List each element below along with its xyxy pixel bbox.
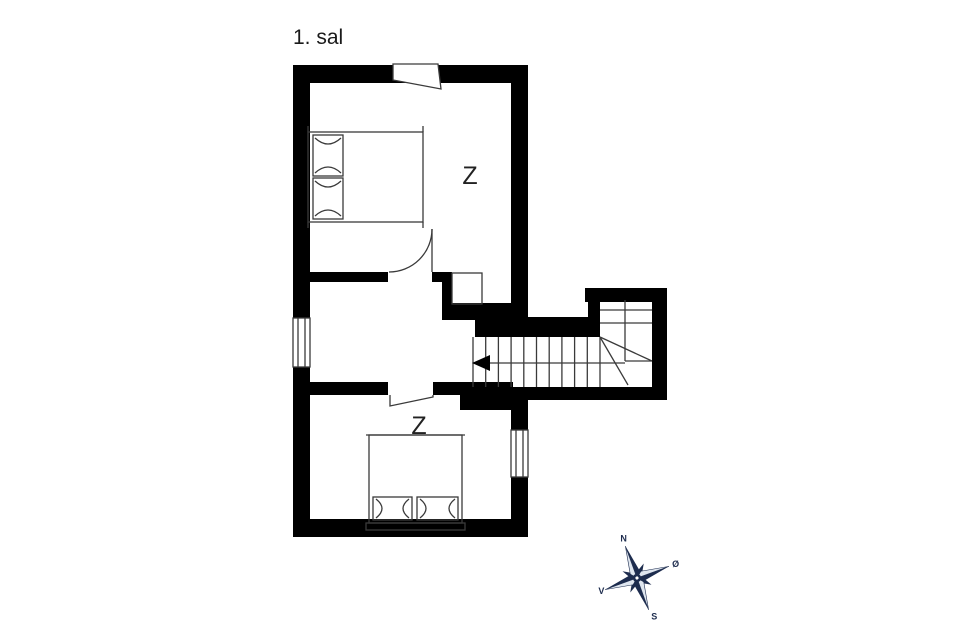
window-left <box>293 318 310 367</box>
stair-direction <box>472 355 625 371</box>
pillow-curve <box>315 167 341 173</box>
pillow-curve <box>315 181 341 187</box>
wall-segment-right-upper <box>511 65 528 323</box>
wall-segment-stairwell-bottom <box>513 387 667 400</box>
floor-plan-drawing: 1. sal <box>0 0 960 640</box>
bedroom1-label: Z <box>462 162 477 190</box>
pillow <box>313 178 343 219</box>
pillow-curve <box>315 138 341 144</box>
wall-segment-bedroom1-partition <box>310 272 388 282</box>
pillow-curve <box>449 499 455 518</box>
pillow <box>313 135 343 176</box>
stair-winder-treads <box>600 300 652 385</box>
pillow-curve <box>420 499 426 518</box>
bedroom2-label: Z <box>411 412 426 440</box>
wall-segment-stairwell-right <box>652 288 667 400</box>
wall-segment-closet-left <box>442 272 452 307</box>
wall-segment-stair-top <box>475 317 600 337</box>
closet-box <box>452 273 482 304</box>
wall-segment-stair-corner <box>460 382 513 410</box>
floor-title: 1. sal <box>293 26 343 49</box>
winder-diagonal <box>600 337 652 361</box>
bed-frame <box>308 132 423 222</box>
winder-diagonal <box>600 337 628 385</box>
window-right <box>511 430 528 477</box>
compass-rose-icon: N Ø S V <box>581 517 697 637</box>
double-bed-upper-icon <box>308 126 423 228</box>
floor-plan-page: 1. sal <box>0 0 960 640</box>
pillow-curve <box>315 210 341 216</box>
bed-frame <box>369 435 462 523</box>
pillow <box>417 497 458 520</box>
door-swing-arc <box>389 229 432 272</box>
compass-west-label: V <box>598 586 604 596</box>
compass-north-label: N <box>620 533 627 543</box>
compass-east-label: Ø <box>672 559 679 569</box>
window-frame <box>511 430 528 477</box>
compass-south-label: S <box>651 612 657 622</box>
pillow-curve <box>376 499 382 518</box>
pillow-curve <box>403 499 409 518</box>
wall-segment-bedroom2-partition-left <box>310 382 388 395</box>
window-frame <box>293 318 310 367</box>
door-bedroom1 <box>389 229 432 272</box>
roof-window-icon <box>393 64 441 89</box>
walls <box>293 65 667 537</box>
double-bed-lower-icon <box>366 435 465 530</box>
door-bedroom2 <box>390 395 433 406</box>
stair-direction-arrow-icon <box>472 355 490 371</box>
stair-treads <box>473 337 600 387</box>
wall-segment-bottom <box>293 519 528 537</box>
pillow <box>373 497 412 520</box>
